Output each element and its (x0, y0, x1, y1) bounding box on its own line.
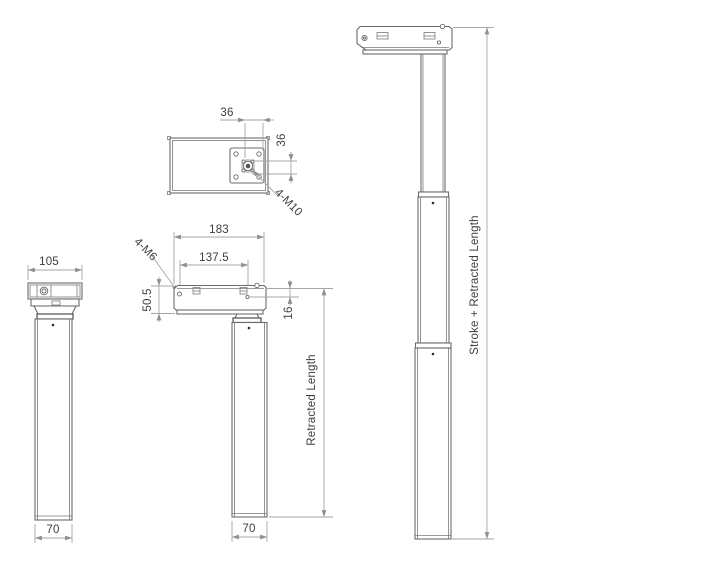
side-view: 183 137.5 4-M6 (131, 224, 333, 542)
dim-retracted-length: Retracted Length (269, 289, 333, 518)
side-view-column (232, 314, 267, 517)
dim-retracted-length-label: Retracted Length (306, 354, 318, 445)
dim-183-label: 183 (209, 224, 229, 236)
dim-137-5-label: 137.5 (199, 252, 229, 264)
middle-tube (418, 197, 449, 343)
callout-4-m10: 4-M10 (252, 170, 304, 219)
side-view-head-box (174, 283, 266, 314)
dim-105: 105 (28, 256, 82, 280)
top-view: 36 36 4-M10 (168, 107, 305, 219)
lifting-column-dimension-drawing: 105 70 (0, 0, 720, 568)
inner-tube (421, 54, 445, 192)
side-view-flange (177, 310, 263, 314)
outer-tube (415, 348, 451, 539)
front-view-head-box (28, 283, 82, 306)
dim-70-side: 70 (232, 521, 267, 542)
extended-view-head-box (357, 24, 452, 54)
dim-50-5-label: 50.5 (142, 288, 154, 311)
front-view-column (34, 306, 76, 520)
extended-view: Stroke + Retracted Length (357, 24, 494, 539)
callout-4-m6: 4-M6 (131, 236, 178, 292)
dim-36-horizontal-label: 36 (220, 107, 233, 119)
extended-view-telescoping-column (415, 54, 451, 539)
dim-70-side-label: 70 (242, 523, 255, 535)
technical-drawing-canvas: 105 70 (0, 0, 720, 568)
dim-36-vertical-label: 36 (276, 133, 288, 146)
dim-70-front-label: 70 (46, 524, 59, 536)
callout-4-m10-label: 4-M10 (272, 187, 304, 219)
dim-16-label: 16 (283, 306, 295, 319)
front-view: 105 70 (28, 256, 82, 543)
extended-view-flange (363, 50, 447, 54)
dim-70-front: 70 (35, 524, 72, 543)
top-view-mounting-plate (230, 148, 264, 183)
dim-105-label: 105 (39, 256, 59, 268)
dim-stroke-plus-retracted-label: Stroke + Retracted Length (469, 215, 481, 355)
dim-stroke-plus-retracted: Stroke + Retracted Length (452, 28, 494, 540)
dim-50-5: 50.5 (142, 277, 175, 322)
